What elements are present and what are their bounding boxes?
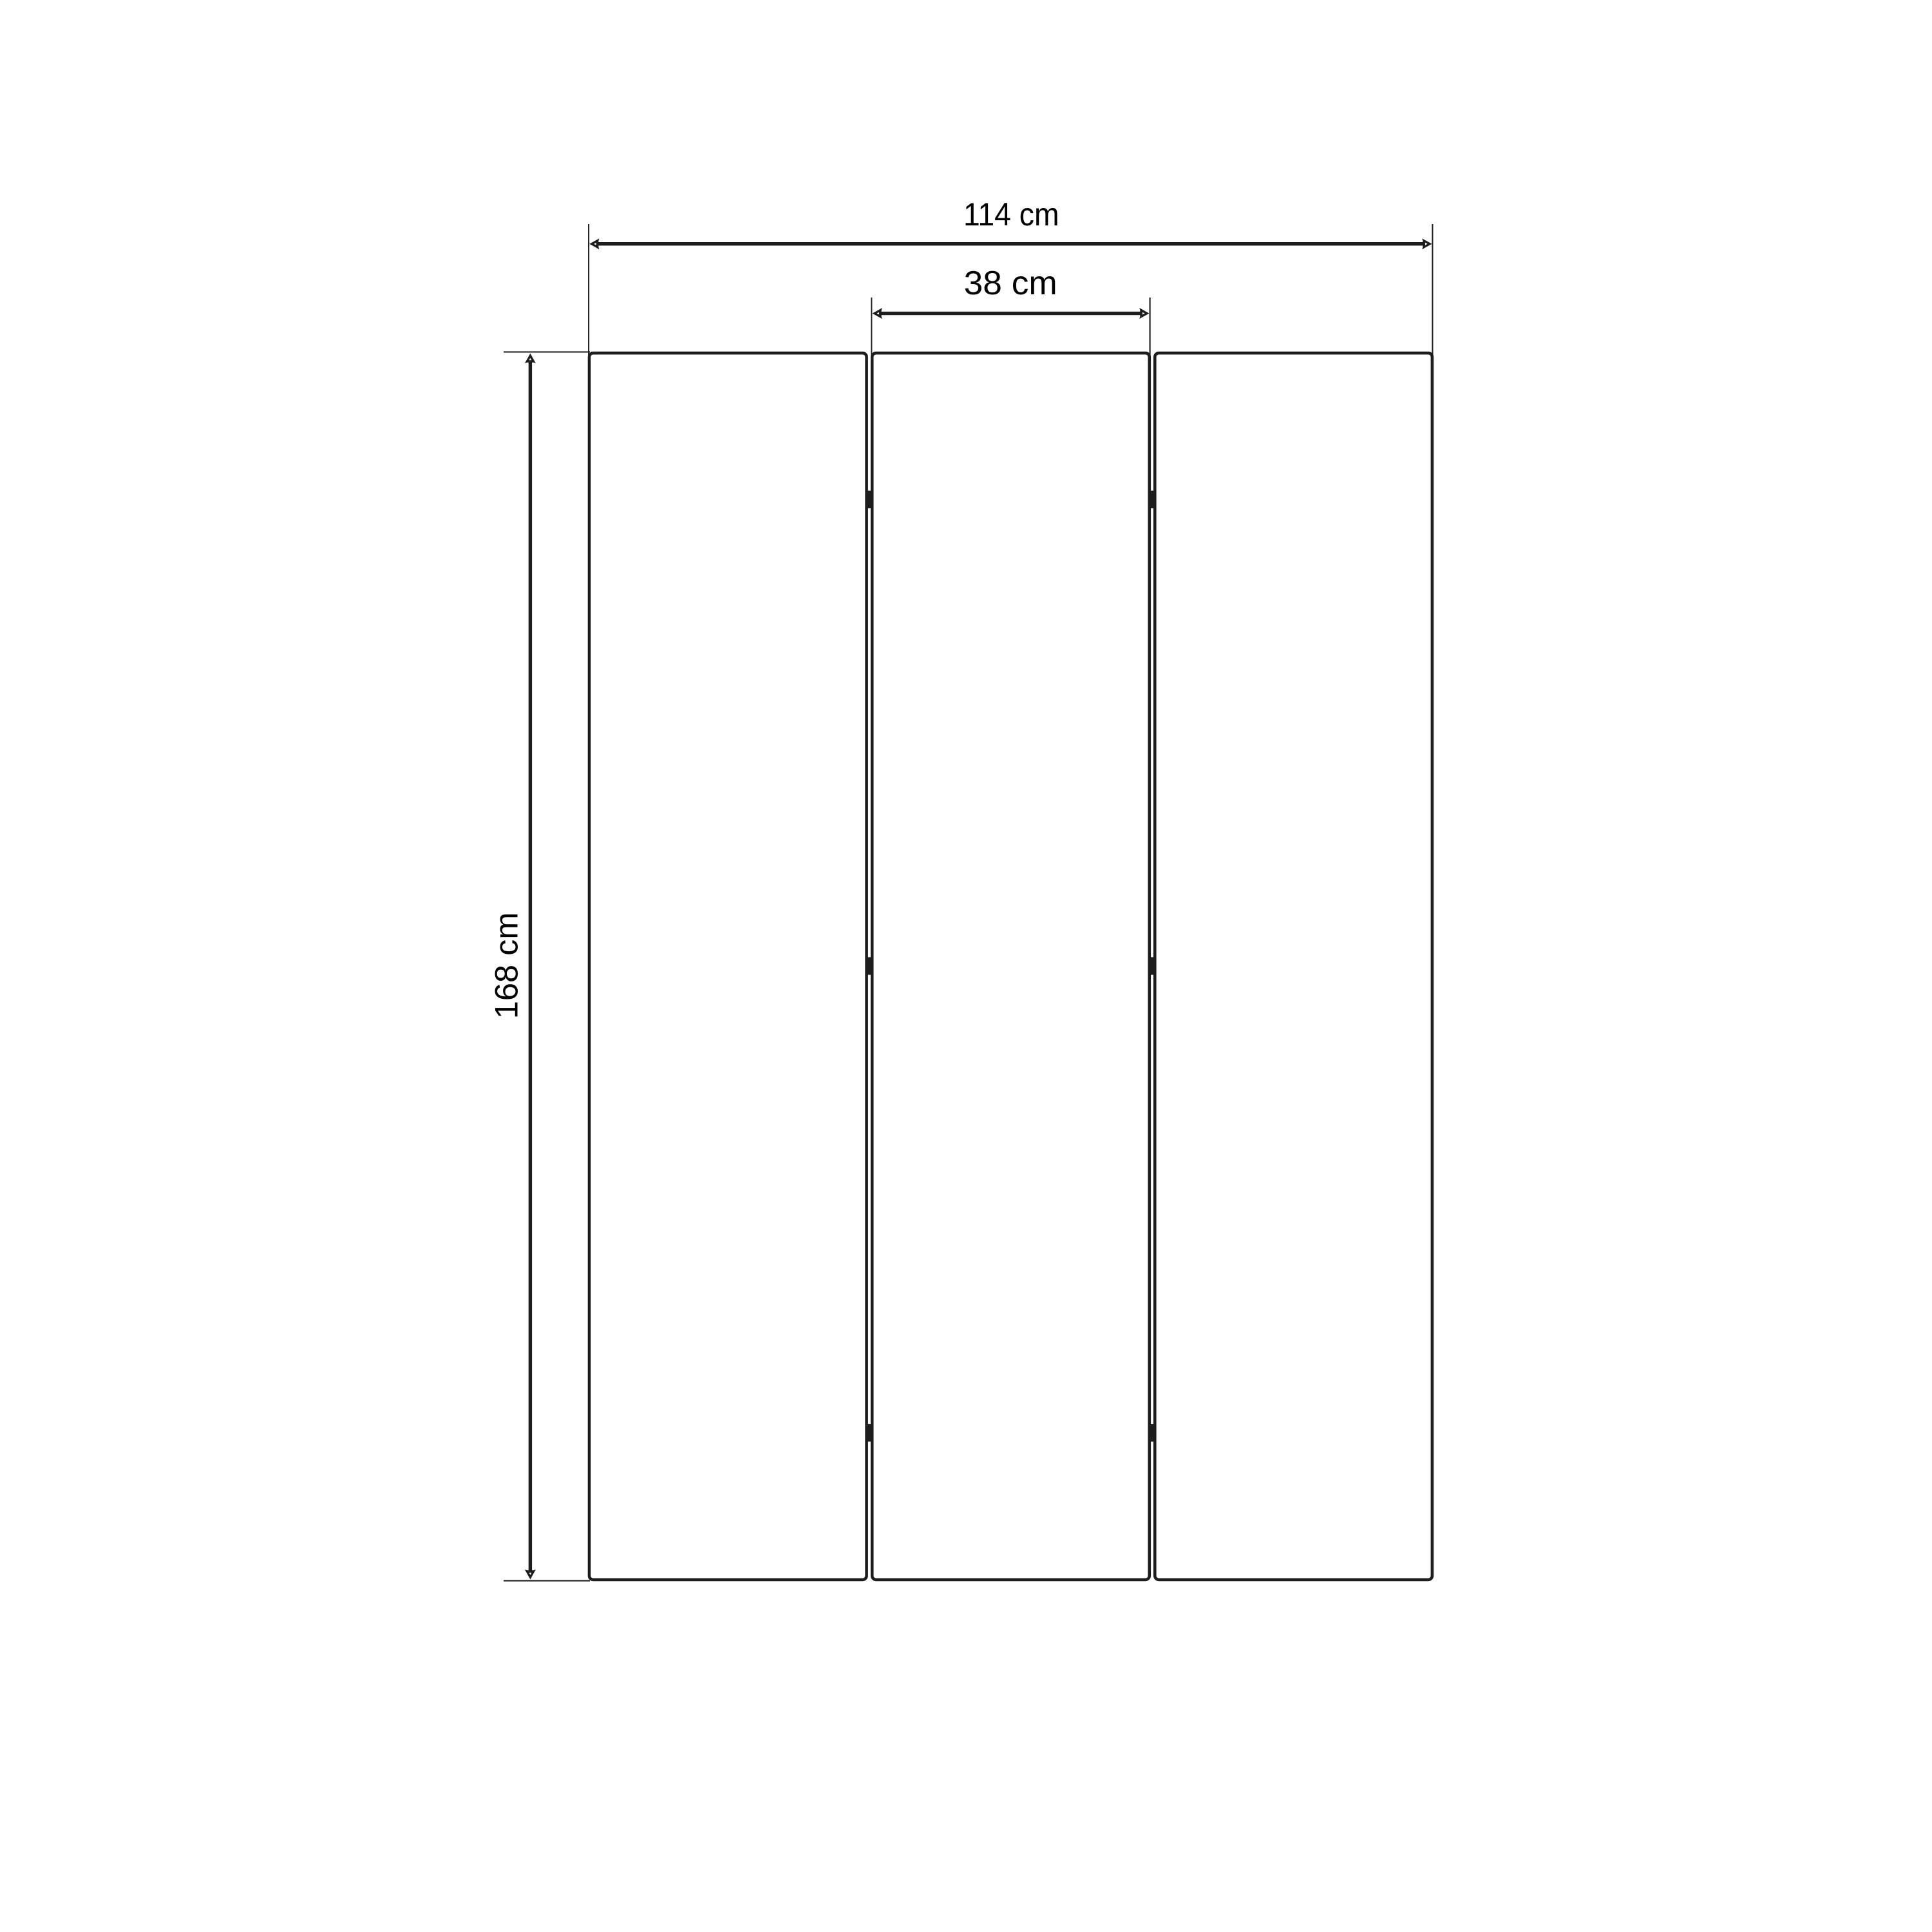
svg-text:114 cm: 114 cm xyxy=(963,196,1059,232)
svg-text:168 cm: 168 cm xyxy=(489,913,525,1019)
svg-text:38 cm: 38 cm xyxy=(964,265,1057,302)
